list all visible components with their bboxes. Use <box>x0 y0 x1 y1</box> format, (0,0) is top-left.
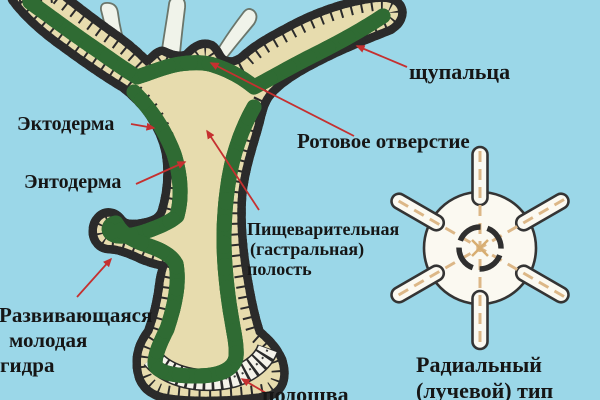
ectoderm-label: Эктодерма <box>17 114 114 135</box>
hydra-diagram: Эктодерма Энтодерма щупальца Ротовое отв… <box>0 0 600 400</box>
tentacles-arrow <box>357 46 407 67</box>
mouth-label: Ротовое отверстие <box>297 130 470 152</box>
developing-bud-arrow <box>77 259 111 297</box>
sole-label: подошва <box>262 383 349 400</box>
digestive-cavity-label: Пищеварительная (гастральная) полость <box>247 219 399 279</box>
developing-bud-label: Развивающаяся молодая гидра <box>0 303 152 378</box>
endoderm-label: Энтодерма <box>24 172 121 193</box>
radial-symmetry-diagram <box>389 147 571 349</box>
tentacles-label: щупальца <box>409 60 510 83</box>
radial-type-label: Радиальный (лучевой) тип <box>416 352 553 400</box>
